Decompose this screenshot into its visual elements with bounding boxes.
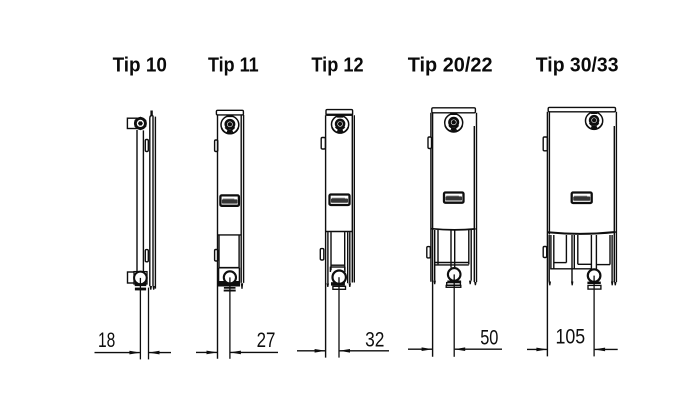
svg-text:Tip 11: Tip 11	[208, 54, 259, 77]
svg-text:Tip 20/22: Tip 20/22	[408, 54, 493, 77]
svg-text:50: 50	[480, 327, 498, 350]
svg-text:32: 32	[365, 328, 384, 351]
svg-text:Tip 10: Tip 10	[113, 54, 167, 77]
svg-text:18: 18	[98, 329, 115, 352]
svg-text:105: 105	[556, 325, 586, 348]
svg-text:Tip 12: Tip 12	[311, 54, 363, 77]
svg-text:Tip 30/33: Tip 30/33	[536, 54, 619, 77]
svg-text:27: 27	[257, 329, 276, 352]
